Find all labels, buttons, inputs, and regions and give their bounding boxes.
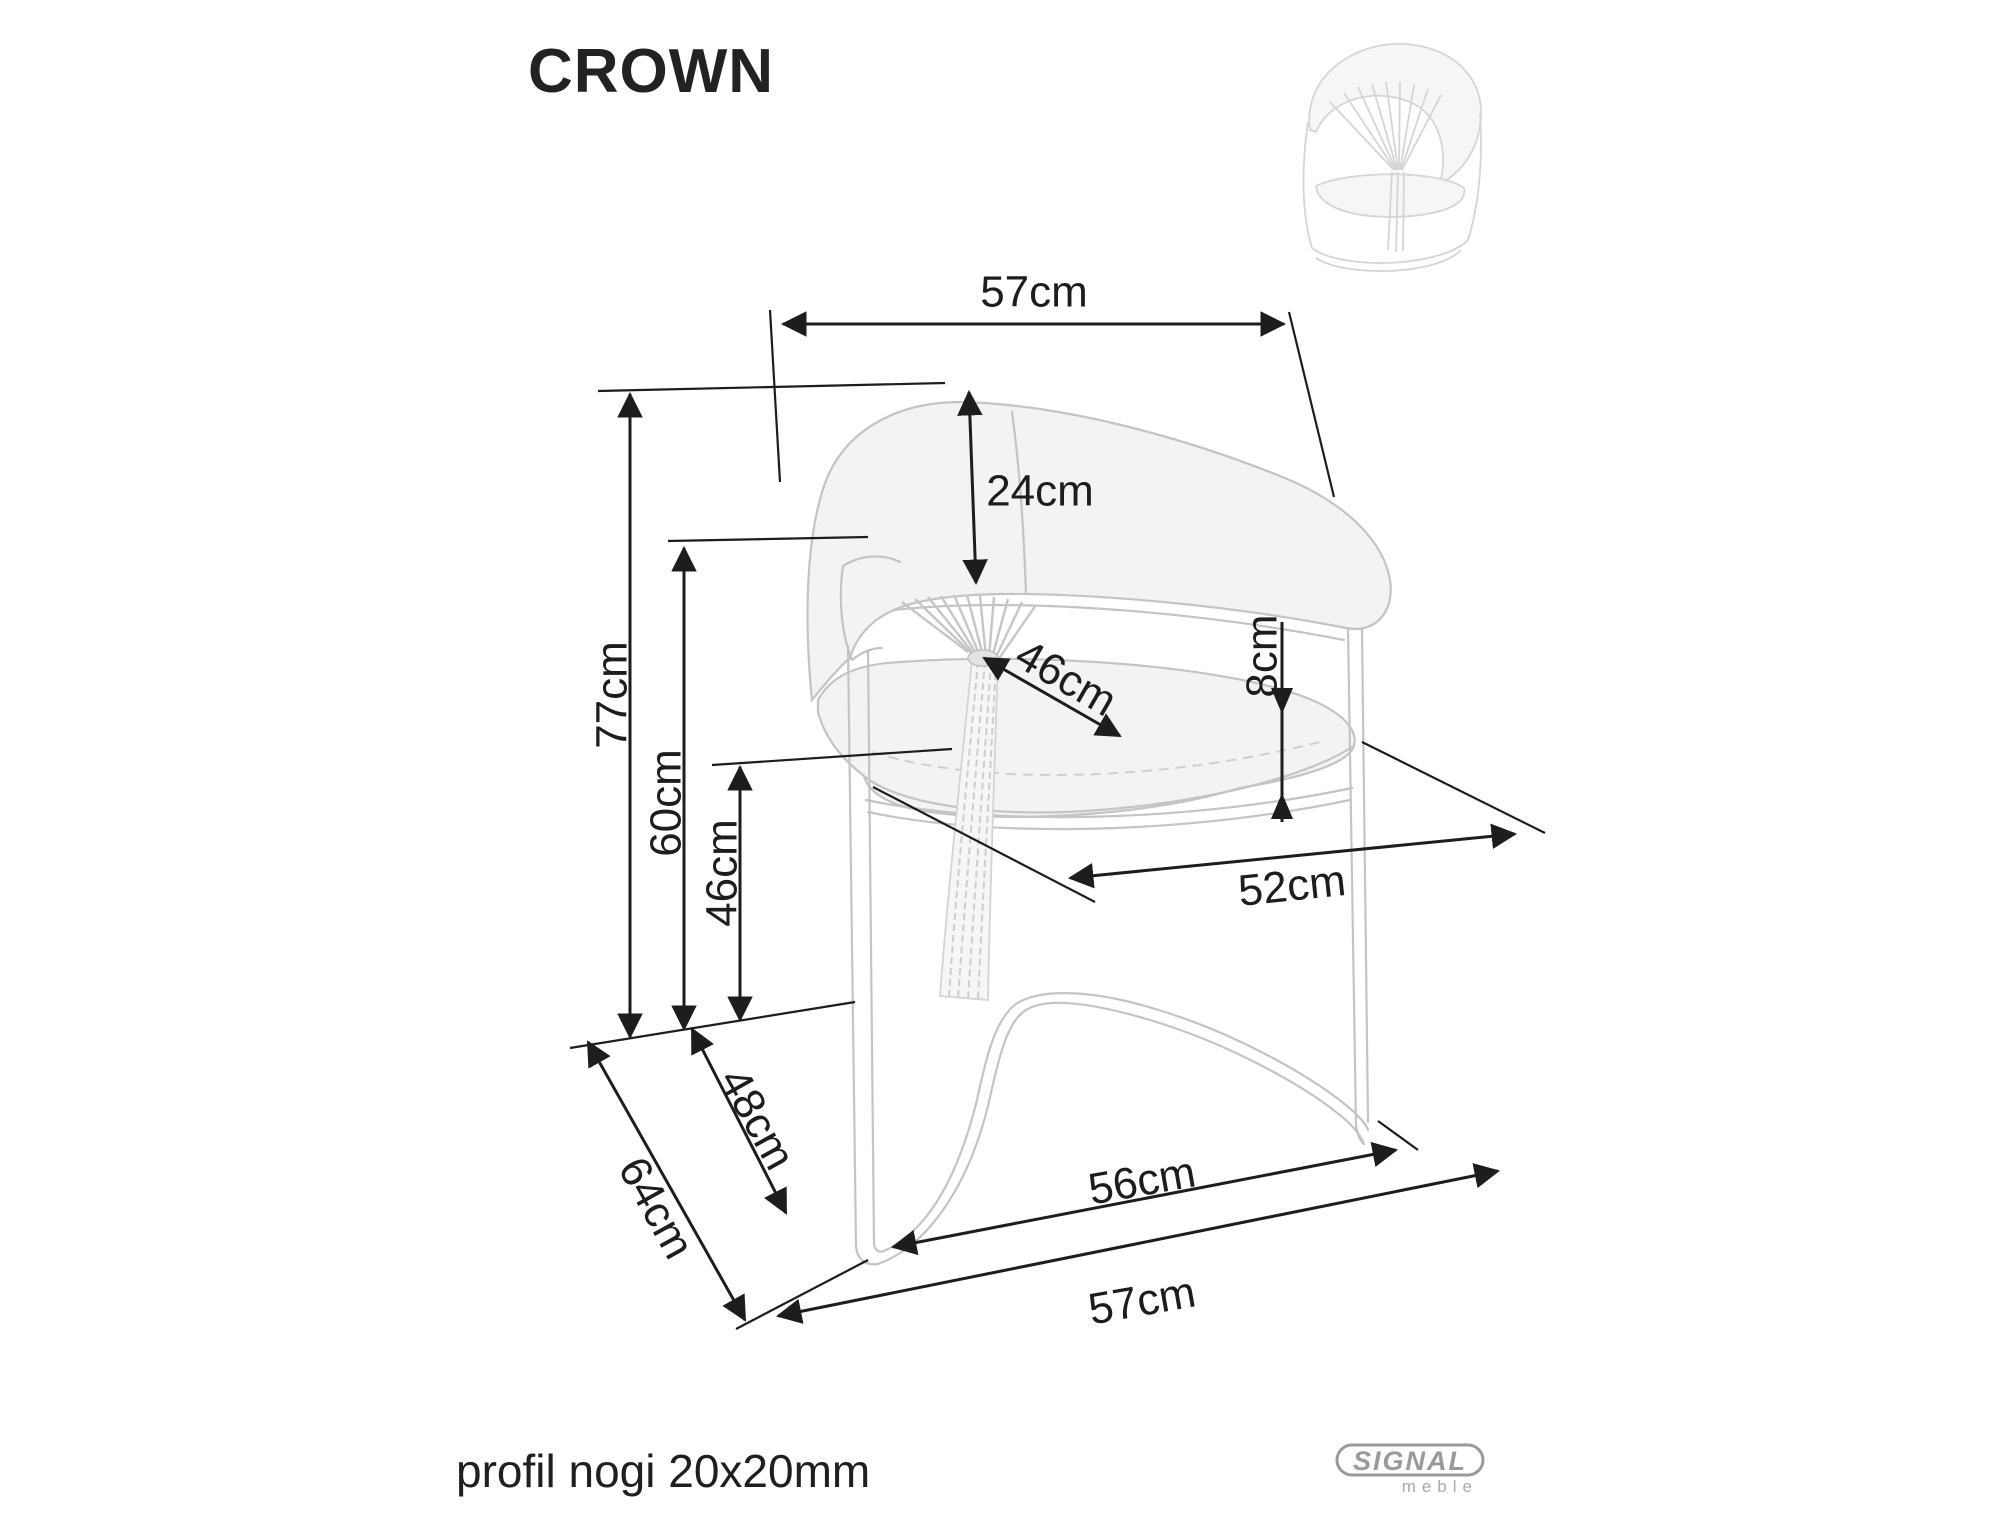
right-frame-post — [1348, 628, 1368, 1144]
dim-armrest-height: 60cm — [642, 548, 691, 1029]
dim-label-overall-depth: 64cm — [608, 1149, 703, 1267]
dim-seat-height: 46cm — [698, 767, 747, 1020]
product-thumbnail — [1303, 44, 1481, 271]
dim-overall-height: 77cm — [588, 394, 637, 1037]
ext-top-height — [598, 383, 945, 391]
dim-label-overall-height: 77cm — [588, 641, 637, 749]
chair-illustration — [808, 402, 1391, 1264]
dim-label-backrest-band-height: 24cm — [986, 467, 1094, 516]
logo-sub-wordmark: meble — [1402, 1477, 1478, 1496]
base-sled-arc — [878, 993, 1368, 1264]
dimension-sheet: CROWN profil nogi 20x20mm — [0, 0, 2000, 1530]
dim-label-armrest-height: 60cm — [642, 749, 691, 857]
dim-label-overall-width: 57cm — [1085, 1268, 1199, 1335]
chair-backrest — [808, 402, 1391, 700]
ext-topwidth-left — [770, 310, 780, 482]
logo-wordmark: SIGNAL — [1353, 1446, 1467, 1476]
dim-label-base-front-width: 56cm — [1085, 1148, 1199, 1215]
dim-label-seat-width: 52cm — [1236, 856, 1348, 916]
dim-label-base-side-depth: 48cm — [709, 1060, 804, 1178]
dim-label-cushion-thickness: 8cm — [1238, 614, 1287, 697]
dim-base-side-depth: 48cm — [692, 1029, 805, 1213]
ext-seatwidth-right — [1362, 742, 1545, 833]
dimension-drawing: 57cm 24cm 77cm 60cm 46cm 46cm 8cm — [0, 0, 2000, 1530]
dim-seat-width: 52cm — [1070, 834, 1515, 916]
dim-label-seat-height: 46cm — [698, 819, 747, 927]
ext-basewidth-right — [1378, 1121, 1418, 1150]
ext-topwidth-right — [1289, 312, 1334, 497]
brand-logo: SIGNAL meble — [1337, 1445, 1483, 1496]
dim-backrest-top-width: 57cm — [783, 268, 1284, 325]
ext-bottom-left — [736, 1260, 868, 1329]
dim-label-backrest-top-width: 57cm — [980, 268, 1088, 317]
ext-floor — [570, 1002, 855, 1048]
